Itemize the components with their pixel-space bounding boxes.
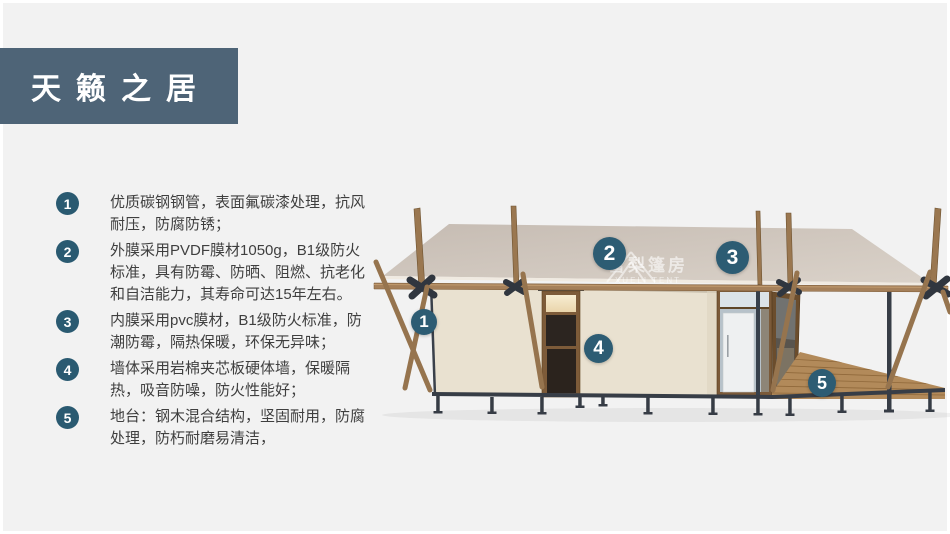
slide-page: 天籁之居 1 优质碳钢钢管，表面氟碳漆处理，抗风耐压，防腐防锈； 2 外膜采用P…	[0, 0, 950, 534]
feature-text-3: 内膜采用pvc膜材，B1级防火标准，防潮防霉，隔热保暖，环保无异味；	[110, 310, 368, 354]
feature-item-3: 3 内膜采用pvc膜材，B1级防火标准，防潮防霉，隔热保暖，环保无异味；	[56, 310, 368, 354]
title-bar: 天籁之居	[0, 48, 238, 124]
callout-marker-3: 3	[716, 241, 749, 274]
tent-roof	[383, 224, 930, 286]
feature-text-2: 外膜采用PVDF膜材1050g，B1级防火标准，具有防霉、防晒、阻燃、抗老化和自…	[110, 240, 368, 306]
tent-illustration	[372, 200, 950, 435]
feature-badge-2: 2	[56, 240, 79, 263]
feature-text-5: 地台：钢木混合结构，坚固耐用，防腐处理，防朽耐磨易清洁，	[110, 406, 368, 450]
ground-shadow	[382, 408, 950, 422]
callout-marker-1: 1	[411, 309, 437, 335]
feature-badge-4: 4	[56, 358, 79, 381]
glass-door-section	[717, 285, 772, 397]
page-title: 天籁之居	[31, 64, 211, 108]
feature-item-1: 1 优质碳钢钢管，表面氟碳漆处理，抗风耐压，防腐防锈；	[56, 192, 368, 236]
feature-item-5: 5 地台：钢木混合结构，坚固耐用，防腐处理，防朽耐磨易清洁，	[56, 406, 368, 450]
feature-text-1: 优质碳钢钢管，表面氟碳漆处理，抗风耐压，防腐防锈；	[110, 192, 368, 236]
feature-badge-3: 3	[56, 310, 79, 333]
feature-item-2: 2 外膜采用PVDF膜材1050g，B1级防火标准，具有防霉、防晒、阻燃、抗老化…	[56, 240, 368, 306]
feature-text-4: 墙体采用岩棉夹芯板硬体墙，保暖隔热，吸音防噪，防火性能好；	[110, 358, 368, 402]
feature-badge-1: 1	[56, 192, 79, 215]
tent-render: 雪梨篷房 XUELI TENT 1 2 3 4 5	[372, 200, 950, 435]
callout-marker-2: 2	[593, 237, 626, 270]
feature-list: 1 优质碳钢钢管，表面氟碳漆处理，抗风耐压，防腐防锈； 2 外膜采用PVDF膜材…	[56, 192, 368, 454]
feature-badge-5: 5	[56, 406, 79, 429]
entrance-door	[538, 288, 584, 397]
feature-item-4: 4 墙体采用岩棉夹芯板硬体墙，保暖隔热，吸音防噪，防火性能好；	[56, 358, 368, 402]
callout-marker-5: 5	[808, 369, 836, 397]
callout-marker-4: 4	[584, 334, 613, 363]
